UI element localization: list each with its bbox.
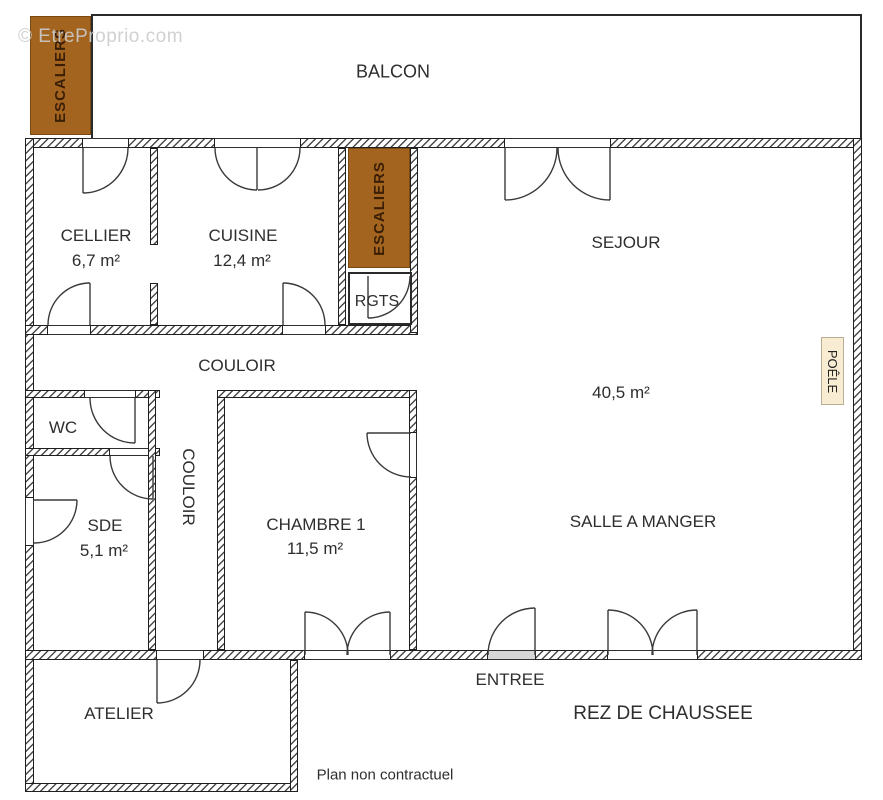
room-label-entree: ENTREE bbox=[476, 670, 545, 690]
floor-title: REZ DE CHAUSSEE bbox=[573, 703, 752, 725]
room-label-cellier: CELLIER bbox=[61, 226, 132, 246]
room-label-salle-a-manger: SALLE A MANGER bbox=[570, 512, 716, 532]
door-arc bbox=[258, 148, 300, 190]
door-arc bbox=[90, 398, 135, 443]
doors-layer bbox=[0, 0, 883, 800]
room-area-cellier: 6,7 m² bbox=[72, 251, 120, 271]
door-arc bbox=[83, 148, 128, 193]
door-arc bbox=[34, 500, 77, 543]
door-arc bbox=[608, 610, 653, 655]
room-area-sde: 5,1 m² bbox=[80, 541, 128, 561]
floor-plan: ESCALIERS ESCALIERS bbox=[0, 0, 883, 800]
room-label-sejour: SEJOUR bbox=[592, 233, 661, 253]
watermark: © EtreProprio.com bbox=[18, 26, 183, 48]
room-label-couloir-vertical: COULOIR bbox=[178, 448, 198, 525]
room-label-wc: WC bbox=[49, 418, 77, 438]
door-arc bbox=[347, 612, 390, 655]
door-arc bbox=[367, 433, 411, 477]
door-arc bbox=[488, 608, 535, 655]
disclaimer-text: Plan non contractuel bbox=[317, 767, 454, 784]
door-arc bbox=[652, 610, 697, 655]
door-arc bbox=[558, 148, 610, 200]
door-arc bbox=[283, 283, 325, 325]
door-arc bbox=[48, 283, 90, 325]
room-area-sejour: 40,5 m² bbox=[592, 383, 650, 403]
door-arc bbox=[157, 660, 200, 703]
door-arc bbox=[110, 456, 153, 499]
room-label-rgts: RGTS bbox=[355, 293, 399, 311]
room-area-chambre1: 11,5 m² bbox=[287, 539, 343, 559]
room-area-cuisine: 12,4 m² bbox=[213, 251, 271, 271]
door-arc bbox=[505, 148, 557, 200]
room-label-balcon: BALCON bbox=[356, 62, 430, 83]
room-label-chambre1: CHAMBRE 1 bbox=[266, 515, 365, 535]
door-arc bbox=[305, 612, 348, 655]
room-label-atelier: ATELIER bbox=[84, 704, 154, 724]
room-label-sde: SDE bbox=[88, 516, 123, 536]
room-label-couloir: COULOIR bbox=[198, 356, 275, 376]
door-arc bbox=[215, 148, 257, 190]
room-label-cuisine: CUISINE bbox=[209, 226, 278, 246]
